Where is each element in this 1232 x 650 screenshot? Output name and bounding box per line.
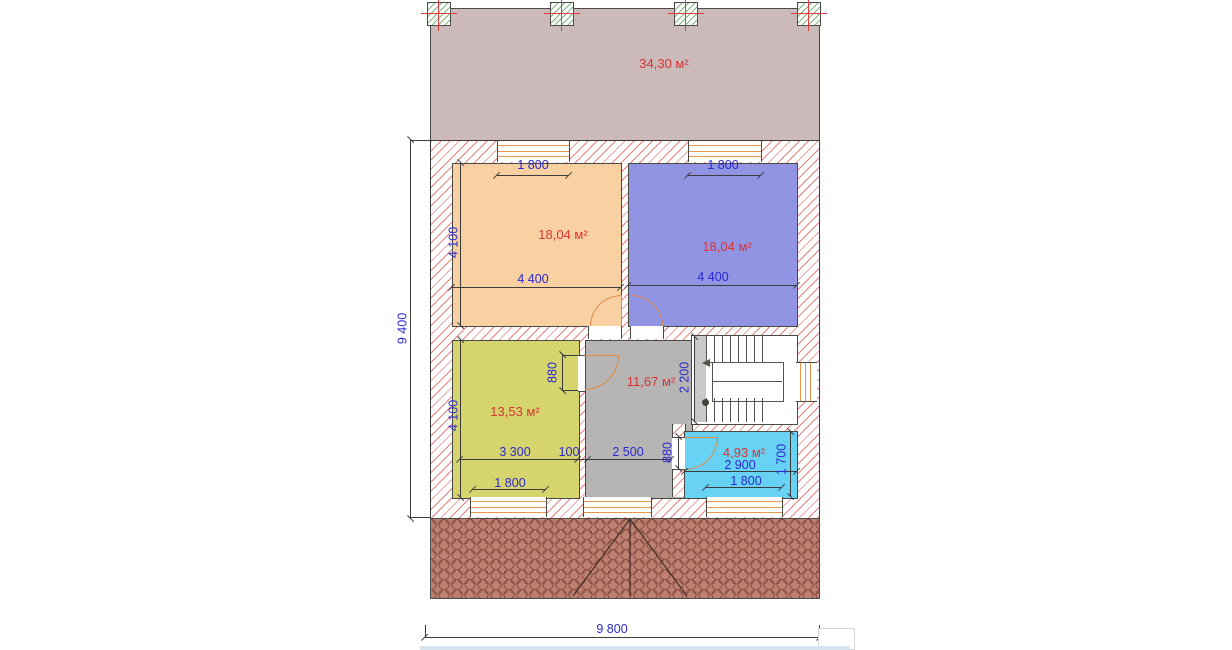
dim-extension <box>562 355 578 356</box>
dim-label-hall-door: 880 <box>547 352 560 394</box>
stair-treads-upper <box>706 336 770 362</box>
dim-label-bathroom-width: 2 900 <box>712 459 768 472</box>
window-glass <box>584 501 651 502</box>
column-marker <box>427 2 451 26</box>
door-opening-hall <box>578 355 585 392</box>
dim-line-window-top-right <box>688 175 760 176</box>
dim-label-wall-thickness: 100 <box>551 446 587 459</box>
window-glass <box>689 151 761 157</box>
dim-line-bathroom-door <box>678 437 679 468</box>
dim-line-overall-width <box>425 637 819 638</box>
door-opening-bedroom-left <box>588 326 622 339</box>
room-terrace <box>430 8 820 142</box>
dim-line-window-top-left <box>497 175 568 176</box>
dim-label-bedroom-left-height: 4 100 <box>448 217 461 269</box>
bottom-edge-strip <box>420 646 850 650</box>
window-glass <box>471 507 546 513</box>
dim-line-bedroom-left-width <box>452 287 620 288</box>
column-axis-icon <box>544 13 580 14</box>
dim-label-bedroom-right-width: 4 400 <box>683 271 743 284</box>
room-bedroom-left <box>452 163 622 327</box>
column-marker <box>797 2 821 26</box>
area-label-hall: 11,67 м² <box>601 374 701 389</box>
stair-flight-divider <box>712 381 782 382</box>
door-opening-bedroom-right <box>630 326 664 339</box>
window-glass <box>498 151 569 157</box>
window-room-bottom-left <box>470 497 547 517</box>
roof-ridge-lines <box>430 518 818 597</box>
window-glass <box>689 145 761 146</box>
stair-direction-arrow-icon <box>702 359 710 367</box>
column-marker <box>674 2 698 26</box>
stair-railing <box>712 362 784 402</box>
window-hall <box>583 497 652 517</box>
dim-label-bathroom-door: 880 <box>662 432 675 474</box>
dim-label-window-bathroom: 1 800 <box>718 475 774 488</box>
dim-line-bedroom-right-width <box>628 285 796 286</box>
dim-extension <box>410 517 430 518</box>
dim-line-overall-height <box>410 140 411 518</box>
area-label-bathroom: 4,93 м² <box>694 445 794 460</box>
area-label-terrace: 34,30 м² <box>614 56 714 71</box>
dim-label-room-bl-height: 4 100 <box>448 390 461 442</box>
dim-label-window-top-right: 1 800 <box>695 159 751 172</box>
column-axis-icon <box>791 13 827 14</box>
window-bathroom <box>706 497 783 517</box>
dim-label-hall-width: 2 500 <box>600 446 656 459</box>
column-axis-icon <box>685 0 686 31</box>
dim-label-window-bottom-left: 1 800 <box>482 477 538 490</box>
window-glass <box>471 501 546 502</box>
window-glass <box>707 501 782 502</box>
dim-extension <box>562 390 578 391</box>
window-glass <box>584 507 651 513</box>
floor-plan-canvas: 1 800 1 800 4 400 4 400 3 300 100 2 500 … <box>0 0 1232 650</box>
dim-label-overall-width: 9 800 <box>584 623 640 636</box>
column-axis-icon <box>561 0 562 31</box>
dim-label-bedroom-left-width: 4 400 <box>503 273 563 286</box>
dim-label-overall-height: 9 400 <box>397 301 410 357</box>
dim-line-hall-door <box>562 355 563 390</box>
window-stairwell <box>796 362 817 402</box>
window-glass <box>498 145 569 146</box>
dim-label-window-top-left: 1 800 <box>505 159 561 172</box>
window-glass <box>805 363 811 401</box>
column-axis-icon <box>668 13 704 14</box>
area-label-bedroom-right: 18,04 м² <box>677 239 777 254</box>
dim-line-bathroom-height <box>790 432 791 496</box>
column-axis-icon <box>808 0 809 31</box>
stair-direction-line <box>709 362 765 363</box>
column-axis-icon <box>421 13 457 14</box>
column-marker <box>550 2 574 26</box>
dim-extension <box>410 140 430 141</box>
stair-start-dot <box>702 399 709 406</box>
window-glass <box>800 363 801 401</box>
area-label-room-bottom-left: 13,53 м² <box>465 404 565 419</box>
dim-extension <box>425 625 426 638</box>
column-axis-icon <box>438 0 439 31</box>
dim-line-bottom-left-chain <box>460 459 670 460</box>
area-label-bedroom-left: 18,04 м² <box>513 227 613 242</box>
dim-label-room-bl-width: 3 300 <box>487 446 543 459</box>
window-glass <box>707 507 782 513</box>
